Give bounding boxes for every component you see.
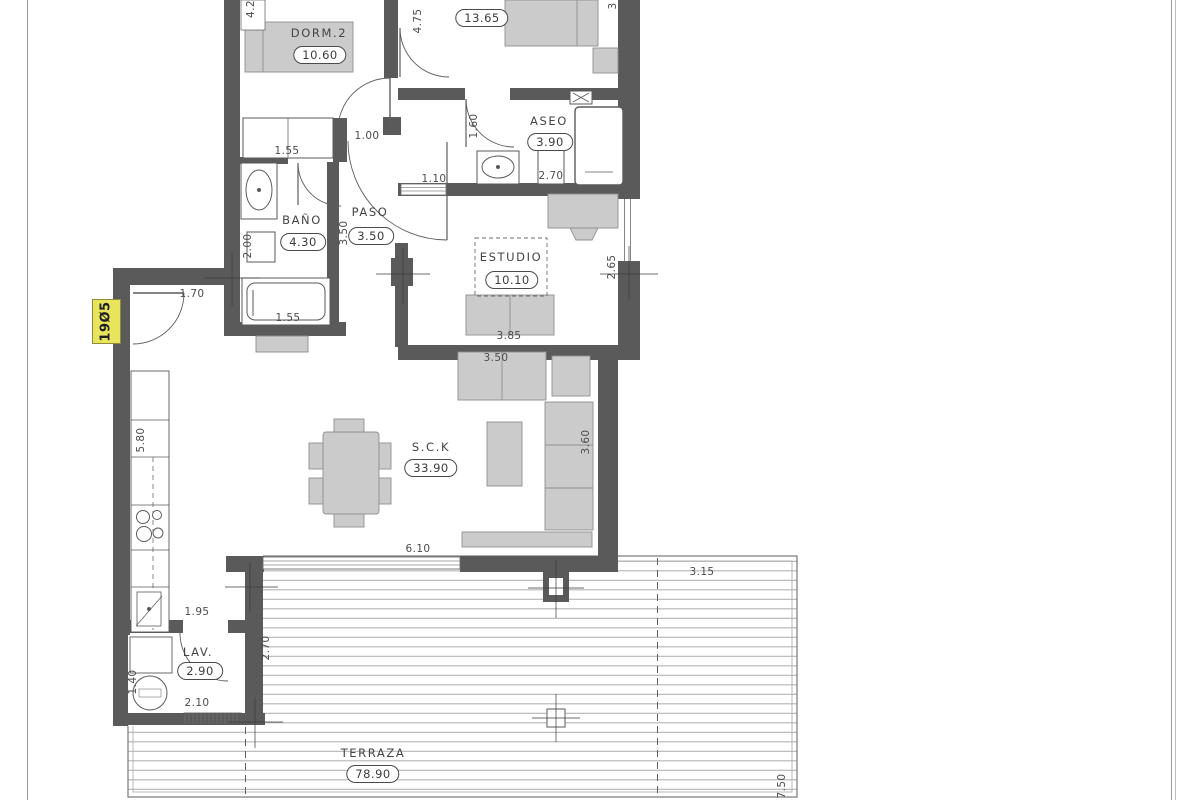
dim-paso-side: 3.50 <box>338 221 350 246</box>
dim-paso-pass: 1.10 <box>422 173 447 185</box>
sheet-plate: 19Ø5 <box>92 299 121 344</box>
room-label-sck: S.C.K <box>412 440 450 454</box>
dim-top-right: 3 <box>607 2 619 9</box>
dim-dorm2-door: 1.00 <box>355 130 380 142</box>
room-area-estudio: 10.10 <box>485 271 538 289</box>
dim-entry-door: 1.70 <box>180 288 205 300</box>
dim-sofa-width: 3.50 <box>484 352 509 364</box>
dim-dorm2-top: 4.2 <box>245 0 257 18</box>
floor-plan-canvas: 19Ø5 DORM.2 10.60 DORM.1 13.65 ASEO 3.90… <box>0 0 1200 800</box>
dim-lav-side: 2.70 <box>260 636 272 661</box>
dim-lav-pass: 1.95 <box>185 606 210 618</box>
room-label-aseo: ASEO <box>530 114 568 128</box>
room-area-sck: 33.90 <box>404 459 457 477</box>
dim-lav-left: 1.40 <box>127 670 139 695</box>
dim-estudio-width: 3.85 <box>497 330 522 342</box>
dim-sofa-side: 3.60 <box>580 430 592 455</box>
dim-bano-side: 2.00 <box>242 234 254 259</box>
dim-estudio-side: 2.65 <box>606 255 618 280</box>
dim-dorm1-side: 4.75 <box>412 9 424 34</box>
room-area-paso: 3.50 <box>348 227 394 245</box>
room-label-bano: BAÑO <box>282 213 322 227</box>
room-area-aseo: 3.90 <box>527 133 573 151</box>
room-area-terraza: 78.90 <box>346 765 399 783</box>
room-label-terraza: TERRAZA <box>341 746 406 760</box>
dim-terraza-side: 7.50 <box>776 774 788 799</box>
dim-sck-window: 6.10 <box>406 543 431 555</box>
room-label-paso: PASO <box>352 205 389 219</box>
room-area-lav: 2.90 <box>177 662 223 680</box>
dim-aseo-width: 2.70 <box>539 170 564 182</box>
dim-lav-width: 2.10 <box>185 697 210 709</box>
dim-wardrobe: 1.55 <box>275 145 300 157</box>
room-area-dorm2: 10.60 <box>293 46 346 64</box>
room-label-lav: LAV. <box>183 645 213 659</box>
room-area-bano: 4.30 <box>280 233 326 251</box>
room-label-estudio: ESTUDIO <box>480 250 543 264</box>
dim-aseo-side: 1.60 <box>468 114 480 139</box>
dim-terraza-top: 3.15 <box>690 566 715 578</box>
sheet-plate-label: 19Ø5 <box>99 301 114 341</box>
room-area-dorm1: 13.65 <box>455 9 508 27</box>
floor-plan-drawing <box>0 0 1200 800</box>
dim-kitchen-run: 5.80 <box>135 428 147 453</box>
dim-bath: 1.55 <box>276 312 301 324</box>
room-label-dorm2: DORM.2 <box>291 26 347 40</box>
